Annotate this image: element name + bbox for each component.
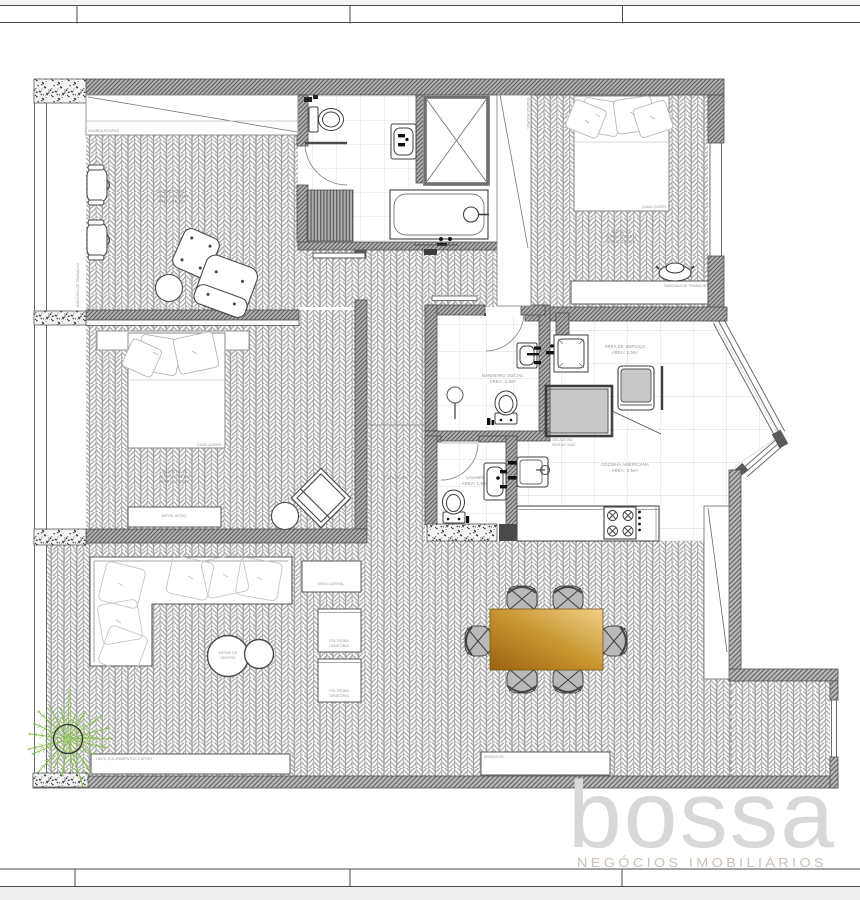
svg-text:ÁREA DE SERVIÇO: ÁREA DE SERVIÇO [604,344,646,349]
svg-text:ÁREA: 12,0m²: ÁREA: 12,0m² [606,239,636,244]
svg-text:POLTRONA: POLTRONA [329,689,349,693]
svg-text:ÁREA: 1,6m²: ÁREA: 1,6m² [462,481,489,486]
svg-text:ÁREA: 11,0m²: ÁREA: 11,0m² [161,479,190,484]
svg-text:CAMA QUEEN: CAMA QUEEN [642,205,666,209]
svg-text:GUARDA ROUPAS: GUARDA ROUPAS [88,129,120,133]
svg-text:BANHEIRO SOCIAL: BANHEIRO SOCIAL [482,373,524,378]
svg-text:GELADEIRA: GELADEIRA [552,438,573,442]
svg-text:ÁREA: 9,5m²: ÁREA: 9,5m² [612,468,639,473]
svg-text:CAMA QUEEN: CAMA QUEEN [197,443,221,447]
svg-text:POLTRONA: POLTRONA [329,639,349,643]
svg-text:GIRATÓRIA: GIRATÓRIA [329,693,349,698]
svg-text:MÓVEL APOIO: MÓVEL APOIO [162,513,187,518]
svg-text:LAVABO: LAVABO [466,475,484,480]
svg-text:MESAS DE: MESAS DE [219,651,238,655]
svg-text:ÁREA: 2,5m²: ÁREA: 2,5m² [490,379,517,384]
svg-text:HACK, EQUIPAMENTOS E APOIO: HACK, EQUIPAMENTOS E APOIO [96,757,152,761]
svg-text:GIRATÓRIA: GIRATÓRIA [329,643,349,648]
svg-text:GUARDA ROUPAS: GUARDA ROUPAS [526,97,530,129]
svg-text:SIDE BY SIDE: SIDE BY SIDE [552,443,576,447]
svg-text:BANCADA DE TRABALHO: BANCADA DE TRABALHO [664,284,708,288]
svg-text:ÁREA: 10,5m²: ÁREA: 10,5m² [157,199,187,204]
svg-text:NEGÓCIOS IMOBILIÁRIOS: NEGÓCIOS IMOBILIÁRIOS [577,855,827,870]
svg-text:ÁREA: 2,5m²: ÁREA: 2,5m² [612,350,639,355]
svg-text:bossa: bossa [568,762,836,868]
svg-text:MESA LATERAL: MESA LATERAL [318,582,345,586]
svg-text:CENTRO: CENTRO [220,656,235,660]
svg-text:COZINHA AMERICANA: COZINHA AMERICANA [601,462,649,467]
svg-text:APARADOR: APARADOR [484,755,504,759]
svg-text:BANCADA DE TRABALHO: BANCADA DE TRABALHO [76,263,80,307]
svg-text:CIRCULAÇÃO: CIRCULAÇÃO [384,475,408,480]
